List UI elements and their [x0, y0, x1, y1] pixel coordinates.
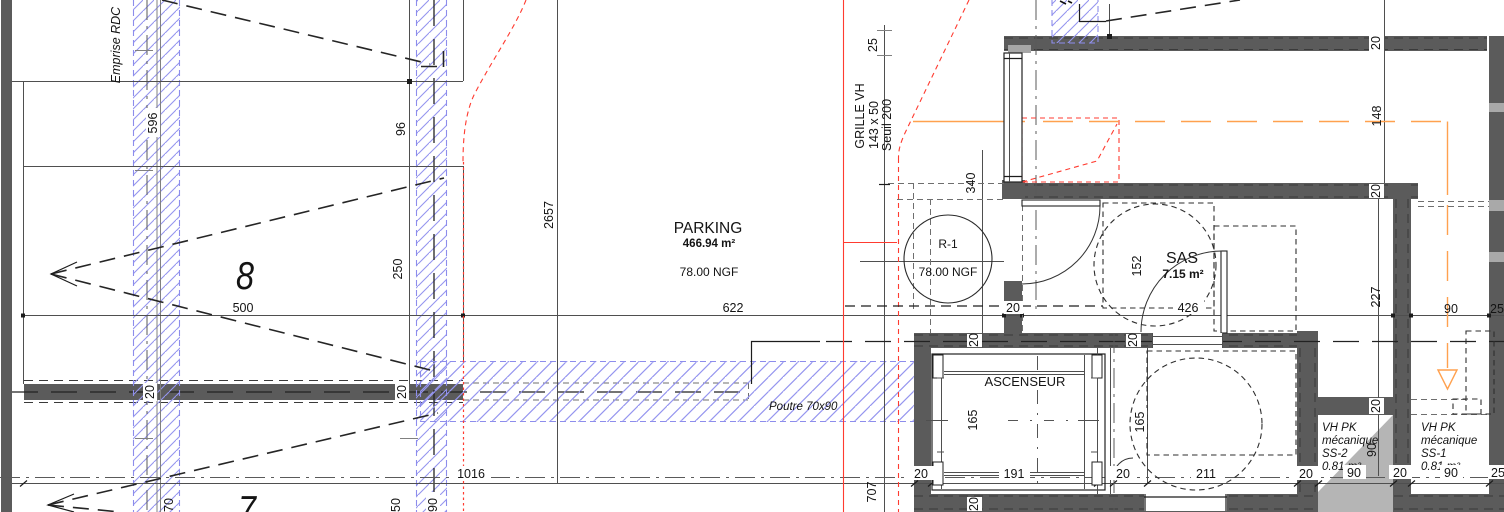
svg-text:78.00 NGF: 78.00 NGF [919, 265, 978, 279]
svg-text:Poutre 70x90: Poutre 70x90 [769, 401, 838, 413]
svg-text:8: 8 [236, 255, 254, 298]
svg-text:466.94 m²: 466.94 m² [683, 238, 736, 250]
svg-text:165: 165 [1133, 412, 1147, 433]
svg-text:165: 165 [966, 410, 980, 431]
svg-text:20: 20 [967, 333, 981, 347]
svg-text:VH PK: VH PK [1322, 422, 1358, 434]
svg-text:148: 148 [1370, 106, 1384, 127]
svg-text:227: 227 [1369, 287, 1383, 308]
svg-text:340: 340 [964, 173, 978, 194]
svg-text:90: 90 [1365, 443, 1379, 457]
svg-text:500: 500 [233, 301, 254, 315]
svg-text:90: 90 [426, 498, 440, 512]
svg-text:78.00 NGF: 78.00 NGF [680, 265, 739, 279]
svg-text:SAS: SAS [1166, 250, 1198, 267]
svg-text:90: 90 [1347, 466, 1361, 480]
svg-text:SS-2: SS-2 [1322, 448, 1348, 460]
svg-text:ASCENSEUR: ASCENSEUR [985, 374, 1066, 389]
svg-text:20: 20 [143, 385, 157, 399]
svg-text:152: 152 [1130, 256, 1144, 277]
svg-text:90: 90 [1444, 466, 1458, 480]
svg-text:20: 20 [1299, 467, 1313, 481]
svg-text:Emprise RDC: Emprise RDC [109, 6, 123, 83]
svg-text:20: 20 [967, 497, 981, 511]
svg-text:1016: 1016 [457, 467, 485, 481]
svg-text:50: 50 [389, 498, 403, 512]
svg-text:20: 20 [1369, 36, 1383, 50]
svg-text:25: 25 [866, 38, 880, 52]
svg-text:7.15 m²: 7.15 m² [1162, 267, 1203, 281]
svg-text:70: 70 [162, 498, 176, 512]
svg-text:Seuil 200: Seuil 200 [880, 99, 894, 151]
svg-text:PARKING: PARKING [674, 220, 743, 237]
svg-text:622: 622 [723, 301, 744, 315]
svg-text:SS-1: SS-1 [1421, 448, 1447, 460]
svg-text:7: 7 [238, 489, 257, 512]
svg-text:90: 90 [1444, 302, 1458, 316]
svg-text:R-1: R-1 [938, 237, 958, 251]
svg-text:596: 596 [146, 113, 160, 134]
svg-text:20: 20 [395, 385, 409, 399]
svg-text:25: 25 [1490, 302, 1504, 316]
svg-text:20: 20 [1369, 399, 1383, 413]
svg-text:20: 20 [1393, 466, 1407, 480]
svg-text:20: 20 [1126, 333, 1140, 347]
svg-text:96: 96 [394, 122, 408, 136]
svg-text:mécanique: mécanique [1421, 435, 1477, 447]
svg-text:143 x 50: 143 x 50 [867, 101, 881, 149]
svg-text:VH PK: VH PK [1421, 422, 1457, 434]
svg-text:20: 20 [1369, 184, 1383, 198]
svg-text:2657: 2657 [542, 201, 556, 229]
svg-text:250: 250 [391, 259, 405, 280]
svg-text:20: 20 [1116, 467, 1130, 481]
svg-text:25: 25 [1491, 466, 1504, 480]
svg-text:20: 20 [914, 467, 928, 481]
svg-text:191: 191 [1004, 467, 1025, 481]
svg-text:211: 211 [1196, 467, 1216, 481]
svg-text:20: 20 [1006, 301, 1020, 315]
svg-text:707: 707 [865, 482, 879, 503]
svg-text:GRILLE VH: GRILLE VH [853, 83, 867, 148]
svg-text:426: 426 [1178, 301, 1199, 315]
